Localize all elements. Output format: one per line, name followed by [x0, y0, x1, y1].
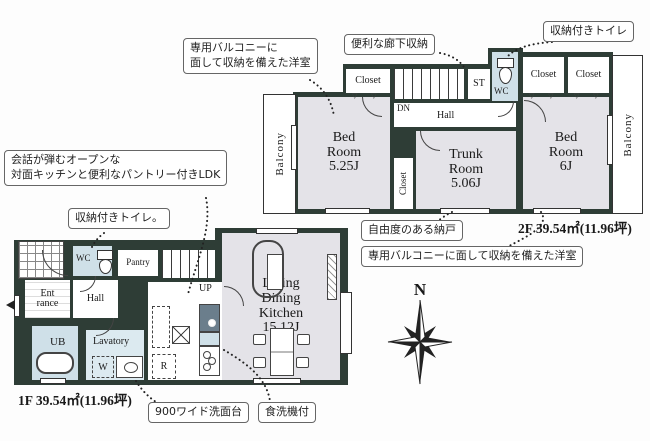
callout-hallway-storage: 便利な廊下収納 [344, 34, 435, 55]
shaft-box [172, 326, 190, 344]
entrance: Ent rance [25, 280, 70, 318]
closet-right2-2f: Closet [568, 57, 609, 93]
chair-icon [296, 357, 309, 368]
washer-box: W [92, 356, 114, 378]
wc-1f-label: WC [76, 254, 91, 264]
chair-icon [253, 357, 266, 368]
hanger-icons-closet-top: ▽ ▽ [352, 92, 383, 100]
window-2f-bed6-balcony [607, 115, 613, 165]
stove-icon [199, 346, 220, 376]
area-label-1f: 1F 39.54㎡(11.96坪) [18, 389, 132, 409]
hall-2f-label: Hall [437, 110, 454, 121]
pantry: Pantry [118, 250, 158, 276]
compass-north-label: N [385, 280, 455, 300]
window-ub-bottom [40, 378, 66, 384]
front-door-arrow-icon [6, 300, 15, 310]
area-label-2f: 2F 39.54㎡(11.96坪) [518, 217, 632, 237]
tv-board-icon [327, 254, 337, 300]
up-label: UP [199, 283, 212, 294]
window-2f-bed525-bottom [325, 208, 370, 214]
stairs-2f [394, 69, 464, 99]
hanger-icons-closet-r2: ▽ ▽ [574, 92, 605, 100]
bathtub-icon [36, 352, 74, 374]
callout-toilet-storage-2f: 収納付きトイレ [543, 21, 634, 42]
chair-icon [297, 334, 310, 345]
closet-right1-2f: Closet [523, 57, 564, 93]
dining-table-icon [270, 328, 294, 376]
compass: N [385, 280, 455, 392]
fridge-box: R [152, 354, 176, 379]
dn-label: DN [397, 104, 410, 114]
lavatory-label: Lavatory [93, 336, 129, 347]
washstand-icon [116, 356, 143, 378]
window-ldk-bottom [253, 378, 301, 384]
callout-dishwasher: 食洗機付 [258, 402, 316, 423]
closet-top-2f: Closet [346, 69, 390, 93]
stairs-1f [162, 250, 215, 278]
closet-side-2f: Closet [394, 158, 413, 209]
ub-label: UB [50, 336, 65, 348]
chair-icon [253, 334, 266, 345]
floor-plan-image: Balcony Balcony Bed Room 5.25J Closet ST… [0, 0, 650, 441]
window-2f-bed6-bottom [533, 208, 581, 214]
wc-2f-label: WC [494, 87, 509, 97]
sofa-icon [252, 240, 284, 298]
window-ldk-top [256, 228, 298, 234]
callout-toilet-storage-1f: 収納付きトイレ。 [68, 208, 170, 229]
balcony-right-label: Balcony [622, 113, 634, 157]
cupboard-box [152, 306, 170, 348]
callout-balcony-room-2f: 専用バルコニーに 面して収納を備えた洋室 [183, 38, 318, 74]
window-2f-trunk-bottom [440, 208, 490, 214]
storage-st-2f: ST [468, 69, 490, 99]
hanger-icons-closet-r1: ▽ ▽ [529, 92, 560, 100]
callout-flexible-storage: 自由度のある納戸 [361, 220, 463, 241]
compass-rose-icon [385, 300, 455, 390]
kitchen-sink-icon [199, 304, 220, 332]
window-2f-bed525-balcony [291, 125, 297, 170]
bay-window-ldk [340, 292, 352, 354]
callout-balcony-room-6j: 専用バルコニーに面して収納を備えた洋室 [361, 246, 583, 267]
callout-ldk-open-kitchen: 会話が弾むオープンな 対面キッチンと便利なパントリー付きLDK [4, 150, 227, 186]
balcony-right-2f: Balcony [612, 55, 643, 214]
callout-wide-washstand: 900ワイド洗面台 [148, 402, 249, 423]
closet-side-label: Closet [399, 172, 408, 195]
kitchen-counter [199, 332, 220, 346]
balcony-left-label: Balcony [274, 132, 286, 176]
